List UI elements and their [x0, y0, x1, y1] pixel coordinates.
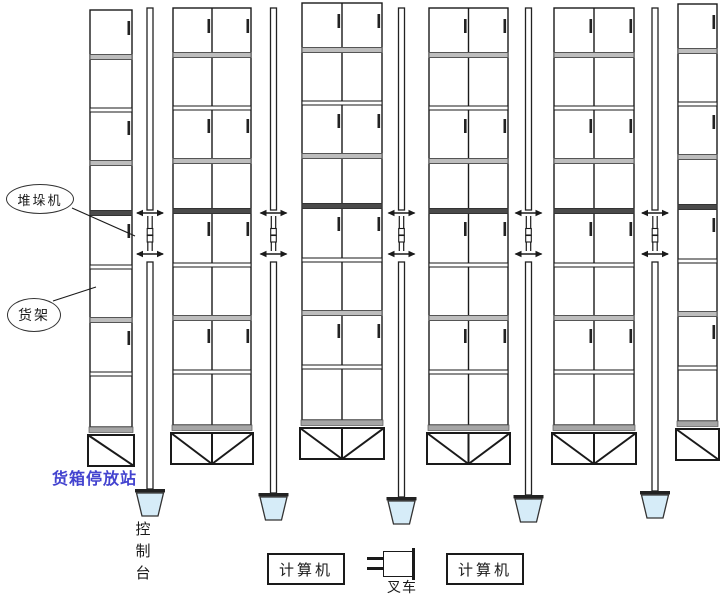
rack-base-bar: [553, 425, 635, 431]
forklift-label: 叉车: [379, 577, 425, 597]
control-station-hopper: [260, 497, 287, 520]
shelf-line: [429, 106, 508, 110]
shelf-tick: [378, 114, 381, 128]
crane-carriage: [399, 236, 405, 243]
shelf-tick: [128, 331, 131, 345]
shelf-line-gray: [302, 154, 382, 159]
forklift-mast: [412, 548, 415, 580]
shelf-tick: [630, 119, 633, 133]
rack-label: 货架: [18, 305, 50, 325]
crane-rail-lower: [652, 262, 658, 491]
shelf-tick: [208, 119, 211, 133]
shelf-tick: [128, 121, 131, 135]
shelf-tick: [590, 19, 593, 33]
shelf-tick: [128, 224, 131, 238]
shelf-line: [554, 106, 634, 110]
shelf-tick: [504, 119, 507, 133]
shelf-tick: [378, 324, 381, 338]
shelf-tick: [338, 217, 341, 231]
shelf-tick: [713, 15, 716, 29]
shelf-line: [429, 263, 508, 267]
station-top-bar: [514, 495, 544, 498]
shelf-tick: [464, 119, 467, 133]
crane-carriage: [271, 229, 277, 236]
shelf-line: [554, 263, 634, 267]
warehouse-layout-diagram: 堆垛机 货架 货箱停放站 控制台 计算机 计算机 叉车: [0, 0, 720, 600]
shelf-tick: [504, 222, 507, 236]
shelf-tick: [378, 14, 381, 28]
shelf-line-gray: [554, 159, 634, 164]
crane-carriage: [271, 236, 277, 243]
station-top-bar: [135, 489, 165, 492]
control-station-hopper: [137, 493, 164, 516]
crane-arrowhead-left: [260, 210, 267, 216]
station-top-bar: [387, 497, 417, 500]
crane-carriage: [526, 236, 532, 243]
crane-rail-lower: [526, 262, 532, 495]
shelf-line-gray: [429, 159, 508, 164]
shelf-tick: [247, 19, 250, 33]
shelf-line-dark: [302, 204, 382, 209]
crane-arrowhead-left: [260, 251, 267, 257]
shelf-line-dark: [429, 209, 508, 214]
crane-carriage: [147, 236, 153, 243]
shelf-tick: [713, 218, 716, 232]
computer-box-left: 计算机: [267, 553, 345, 585]
control-station-hopper: [515, 499, 542, 522]
forklift-body: [383, 551, 413, 577]
shelf-line: [173, 263, 251, 267]
shelf-tick: [464, 19, 467, 33]
crane-arrowhead-right: [281, 251, 288, 257]
shelf-tick: [590, 329, 593, 343]
crane-arrowhead-right: [157, 210, 164, 216]
crane-carriage: [652, 229, 658, 236]
crane-arrowhead-right: [662, 210, 669, 216]
crane-rail-lower: [147, 262, 153, 489]
shelf-tick: [247, 119, 250, 133]
crane-arrowhead-right: [409, 210, 416, 216]
crane-arrowhead-left: [641, 251, 648, 257]
crane-arrowhead-left: [515, 210, 522, 216]
shelf-tick: [590, 119, 593, 133]
shelf-line-gray: [90, 318, 132, 323]
crane-rail-upper: [526, 8, 532, 210]
shelf-line-gray: [302, 48, 382, 53]
shelf-tick: [247, 222, 250, 236]
shelf-line-gray: [678, 49, 717, 54]
crane-rail-upper: [399, 8, 405, 210]
shelf-tick: [590, 222, 593, 236]
shelf-tick: [630, 19, 633, 33]
shelf-line-gray: [554, 316, 634, 321]
shelf-tick: [128, 21, 131, 35]
control-station-hopper: [388, 501, 415, 524]
rack-base-bar: [301, 420, 383, 426]
shelf-tick: [504, 19, 507, 33]
shelf-line-gray: [173, 316, 251, 321]
control-station-hopper: [642, 495, 669, 518]
crane-arrowhead-left: [388, 251, 395, 257]
shelf-line: [90, 372, 132, 376]
forklift-fork-top: [367, 557, 384, 560]
shelf-line: [678, 259, 717, 263]
shelf-line: [173, 370, 251, 374]
crane-arrowhead-left: [136, 210, 143, 216]
shelf-line: [302, 101, 382, 105]
shelf-line: [678, 366, 717, 370]
crane-arrowhead-right: [409, 251, 416, 257]
computer-left-label: 计算机: [279, 559, 333, 580]
rack-base-bar: [677, 421, 718, 427]
crane-arrowhead-left: [641, 210, 648, 216]
station-top-bar: [640, 491, 670, 494]
shelf-tick: [378, 217, 381, 231]
station-top-bar: [259, 493, 289, 496]
shelf-tick: [208, 329, 211, 343]
rack-base-bar: [428, 425, 509, 431]
rack-base-bar: [89, 427, 133, 433]
shelf-line-dark: [173, 209, 251, 214]
shelf-line-gray: [173, 53, 251, 58]
shelf-line: [302, 258, 382, 262]
shelf-line-dark: [678, 205, 717, 210]
shelf-tick: [713, 115, 716, 129]
shelf-line-gray: [429, 316, 508, 321]
crane-arrowhead-left: [136, 251, 143, 257]
container-station-label: 货箱停放站: [52, 465, 137, 489]
crane-arrowhead-right: [536, 251, 543, 257]
crane-carriage: [652, 236, 658, 243]
rack-callout: 货架: [7, 298, 61, 332]
shelf-line: [302, 365, 382, 369]
shelf-line-gray: [678, 312, 717, 317]
shelf-tick: [464, 222, 467, 236]
shelf-tick: [630, 329, 633, 343]
crane-rail-lower: [271, 262, 277, 493]
shelf-line: [90, 265, 132, 269]
crane-arrowhead-right: [281, 210, 288, 216]
computer-right-label: 计算机: [458, 559, 512, 580]
warehouse-diagram-canvas: [0, 0, 720, 600]
shelf-line-gray: [429, 53, 508, 58]
shelf-line: [554, 370, 634, 374]
stacker-crane-label: 堆垛机: [17, 190, 62, 209]
stacker-crane-callout: 堆垛机: [6, 184, 74, 214]
rack-base-bar: [172, 425, 252, 431]
rack-frame: [678, 4, 717, 421]
crane-rail-upper: [271, 8, 277, 210]
crane-arrowhead-right: [662, 251, 669, 257]
shelf-tick: [504, 329, 507, 343]
shelf-tick: [713, 325, 716, 339]
shelf-line-dark: [554, 209, 634, 214]
shelf-line-gray: [173, 159, 251, 164]
shelf-line: [429, 370, 508, 374]
shelf-tick: [630, 222, 633, 236]
shelf-line-dark: [90, 211, 132, 216]
shelf-line: [90, 108, 132, 112]
shelf-tick: [338, 114, 341, 128]
crane-arrowhead-right: [157, 251, 164, 257]
crane-arrowhead-right: [536, 210, 543, 216]
crane-arrowhead-left: [388, 210, 395, 216]
computer-box-right: 计算机: [446, 553, 524, 585]
shelf-tick: [247, 329, 250, 343]
forklift-fork-bottom: [367, 567, 384, 570]
crane-carriage: [399, 229, 405, 236]
shelf-tick: [208, 19, 211, 33]
shelf-tick: [208, 222, 211, 236]
crane-rail-upper: [652, 8, 658, 210]
shelf-tick: [338, 14, 341, 28]
shelf-line-gray: [678, 155, 717, 160]
shelf-line-gray: [302, 311, 382, 316]
shelf-line: [173, 106, 251, 110]
crane-rail-upper: [147, 8, 153, 210]
shelf-line-gray: [90, 161, 132, 166]
crane-rail-lower: [399, 262, 405, 497]
crane-carriage: [526, 229, 532, 236]
crane-arrowhead-left: [515, 251, 522, 257]
crane-carriage: [147, 229, 153, 236]
console-label: 控制台: [134, 519, 152, 585]
shelf-tick: [464, 329, 467, 343]
shelf-line-gray: [90, 55, 132, 60]
shelf-line-gray: [554, 53, 634, 58]
shelf-line: [678, 102, 717, 106]
shelf-tick: [338, 324, 341, 338]
